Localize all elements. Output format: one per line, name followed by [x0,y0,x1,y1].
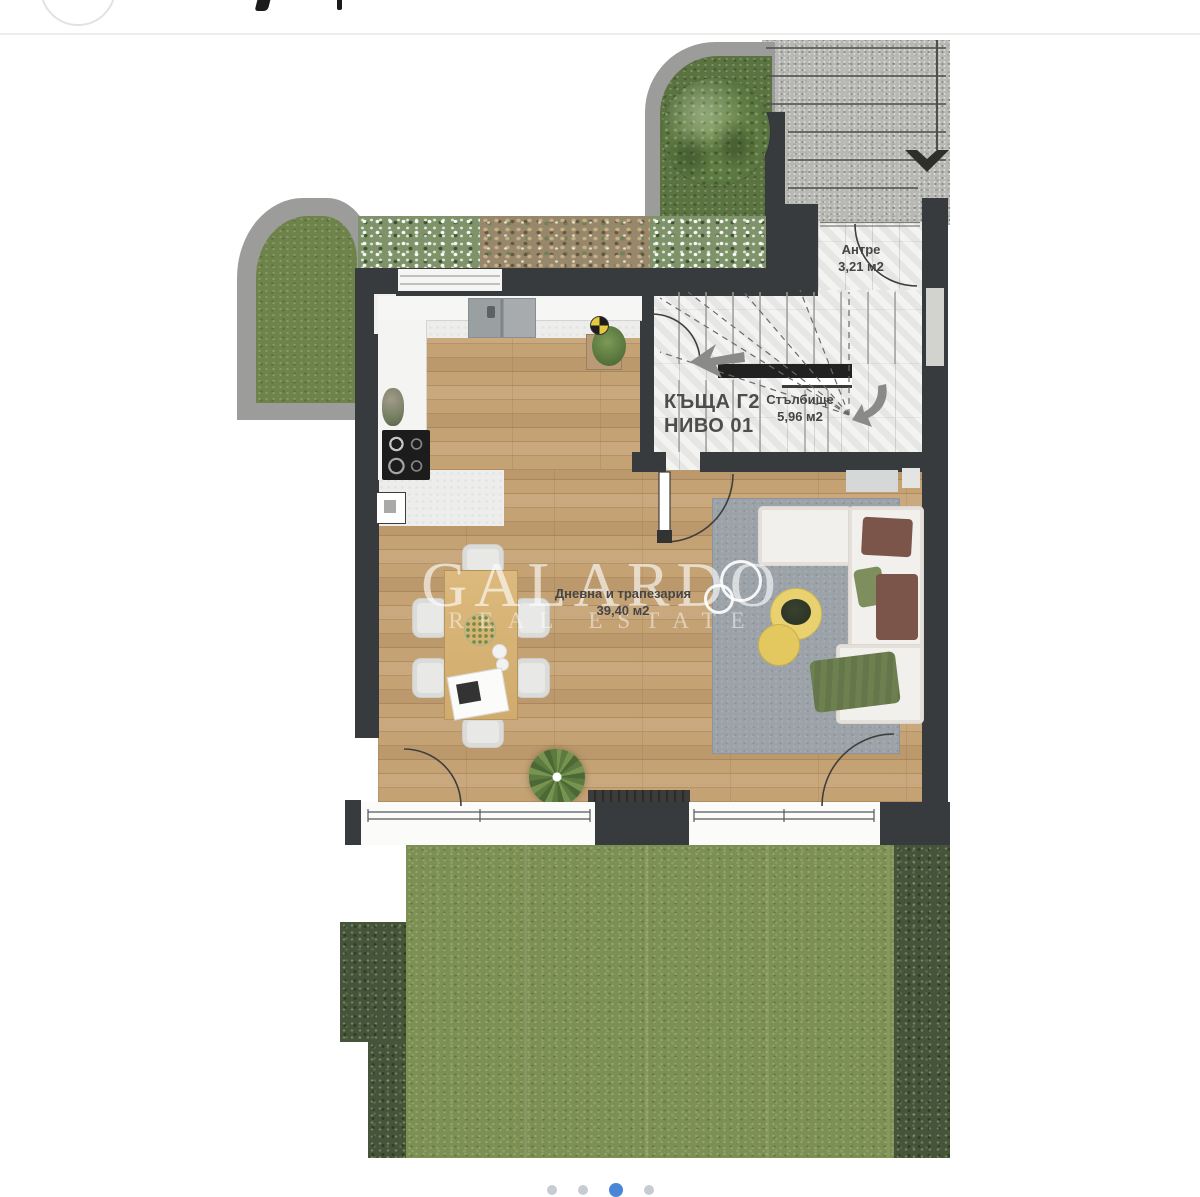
room-name: Стълбище [766,391,834,408]
door-leaf-stair-living [657,472,672,543]
floor-plan[interactable]: GALARDO REAL ESTATE Антре 3,21 м2 Стълби… [0,34,1200,1164]
window-glazing-top [400,276,500,284]
sliding-door-glazing [368,809,874,822]
carousel-dots[interactable] [547,1183,654,1197]
room-label-stairs: Стълбище 5,96 м2 [766,391,834,425]
room-area: 3,21 м2 [838,258,884,275]
unit-line1: КЪЩА Г2 [664,390,760,414]
carousel-dot[interactable] [644,1185,654,1195]
direction-arrow-icon [905,150,949,172]
carousel-dot[interactable] [578,1185,588,1195]
room-name: Дневна и трапезария [555,585,691,602]
entry-threshold-lines [820,223,920,227]
carousel-dot[interactable] [609,1183,623,1197]
room-label-living: Дневна и трапезария 39,40 м2 [555,585,691,619]
patio-step-lines [766,48,946,188]
room-name: Антре [838,241,884,258]
room-area: 39,40 м2 [555,602,691,619]
unit-label: КЪЩА Г2 НИВО 01 [664,390,760,438]
room-area: 5,96 м2 [766,408,834,425]
room-label-antre: Антре 3,21 м2 [838,241,884,275]
patio-guide [905,40,949,172]
carousel-dot[interactable] [547,1185,557,1195]
unit-line2: НИВО 01 [664,414,760,438]
